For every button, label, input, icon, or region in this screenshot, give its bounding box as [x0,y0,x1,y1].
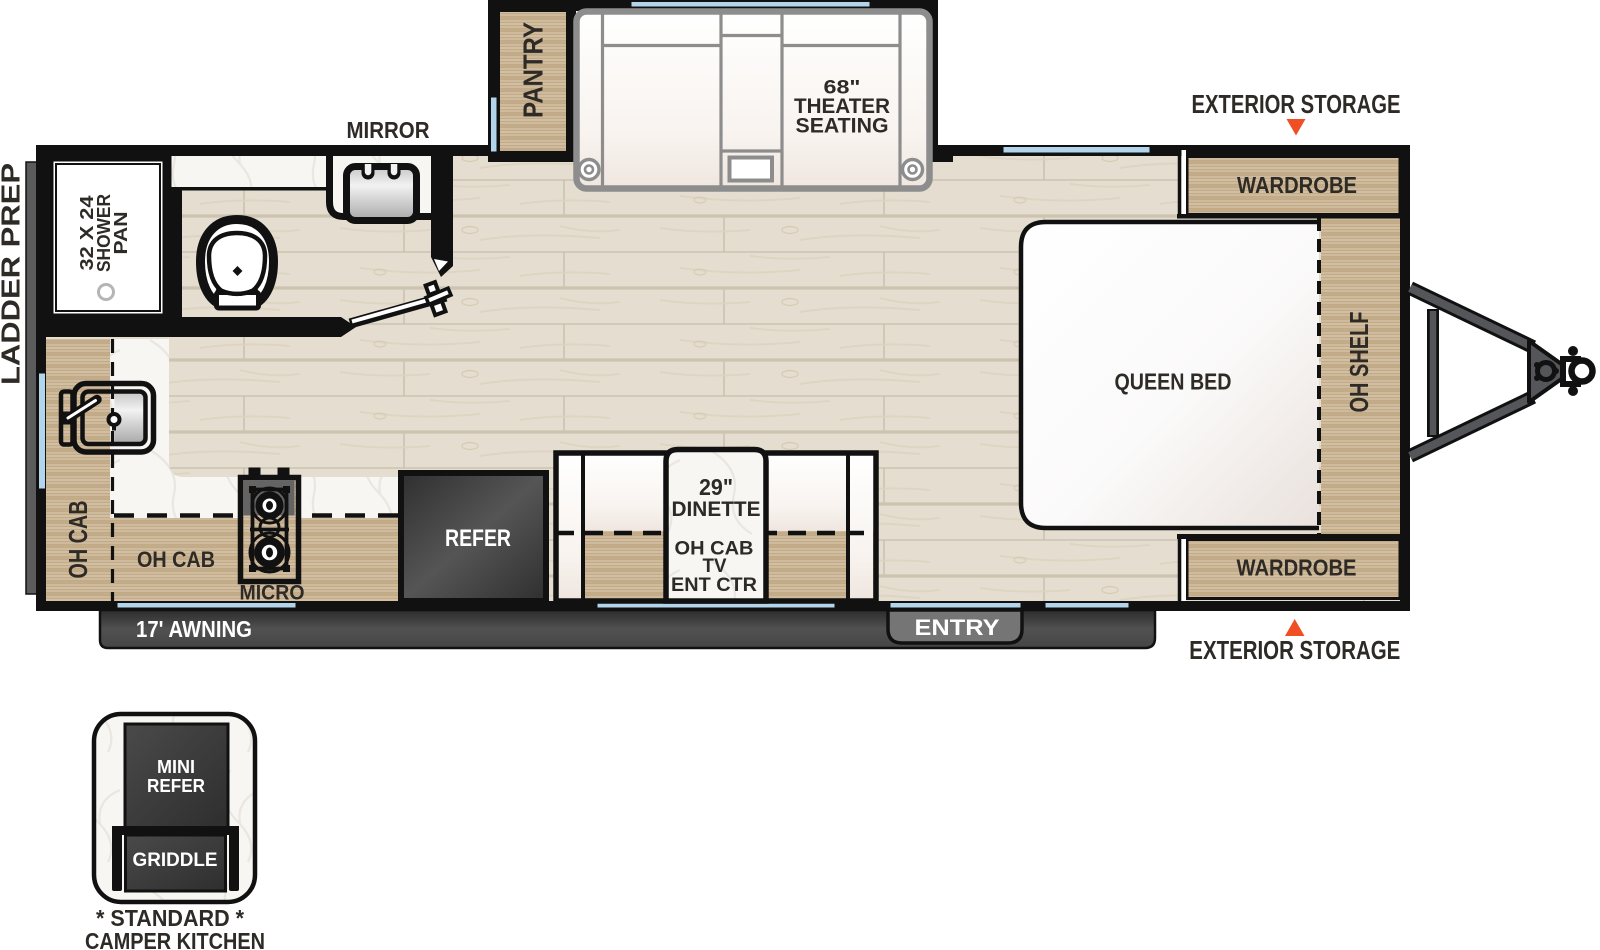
svg-text:REFER: REFER [445,525,511,552]
svg-text:QUEEN BED: QUEEN BED [1115,369,1232,395]
svg-text:CAMPER KITCHEN: CAMPER KITCHEN [85,928,265,950]
svg-text:EXTERIOR STORAGE: EXTERIOR STORAGE [1189,637,1400,665]
svg-text:OH SHELF: OH SHELF [1344,312,1374,413]
svg-text:17' AWNING: 17' AWNING [136,616,252,642]
svg-text:REFER: REFER [147,776,205,796]
svg-text:OH CAB: OH CAB [63,501,93,579]
svg-text:WARDROBE: WARDROBE [1237,172,1357,198]
svg-text:EXTERIOR STORAGE: EXTERIOR STORAGE [1192,91,1401,119]
svg-text:ENTRY: ENTRY [915,615,1000,640]
svg-text:PANTRY: PANTRY [518,22,549,118]
svg-text:LADDER PREP: LADDER PREP [0,163,26,385]
svg-text:MINI: MINI [157,757,195,777]
svg-text:PAN: PAN [111,212,131,255]
svg-text:WARDROBE: WARDROBE [1237,555,1357,581]
svg-text:ENT CTR: ENT CTR [671,574,757,596]
svg-text:MICRO: MICRO [240,581,305,605]
svg-text:OH CAB: OH CAB [137,547,215,572]
svg-text:SEATING: SEATING [796,114,889,138]
svg-text:GRIDDLE: GRIDDLE [133,850,218,871]
svg-text:MIRROR: MIRROR [347,117,430,143]
svg-text:DINETTE: DINETTE [672,497,761,521]
